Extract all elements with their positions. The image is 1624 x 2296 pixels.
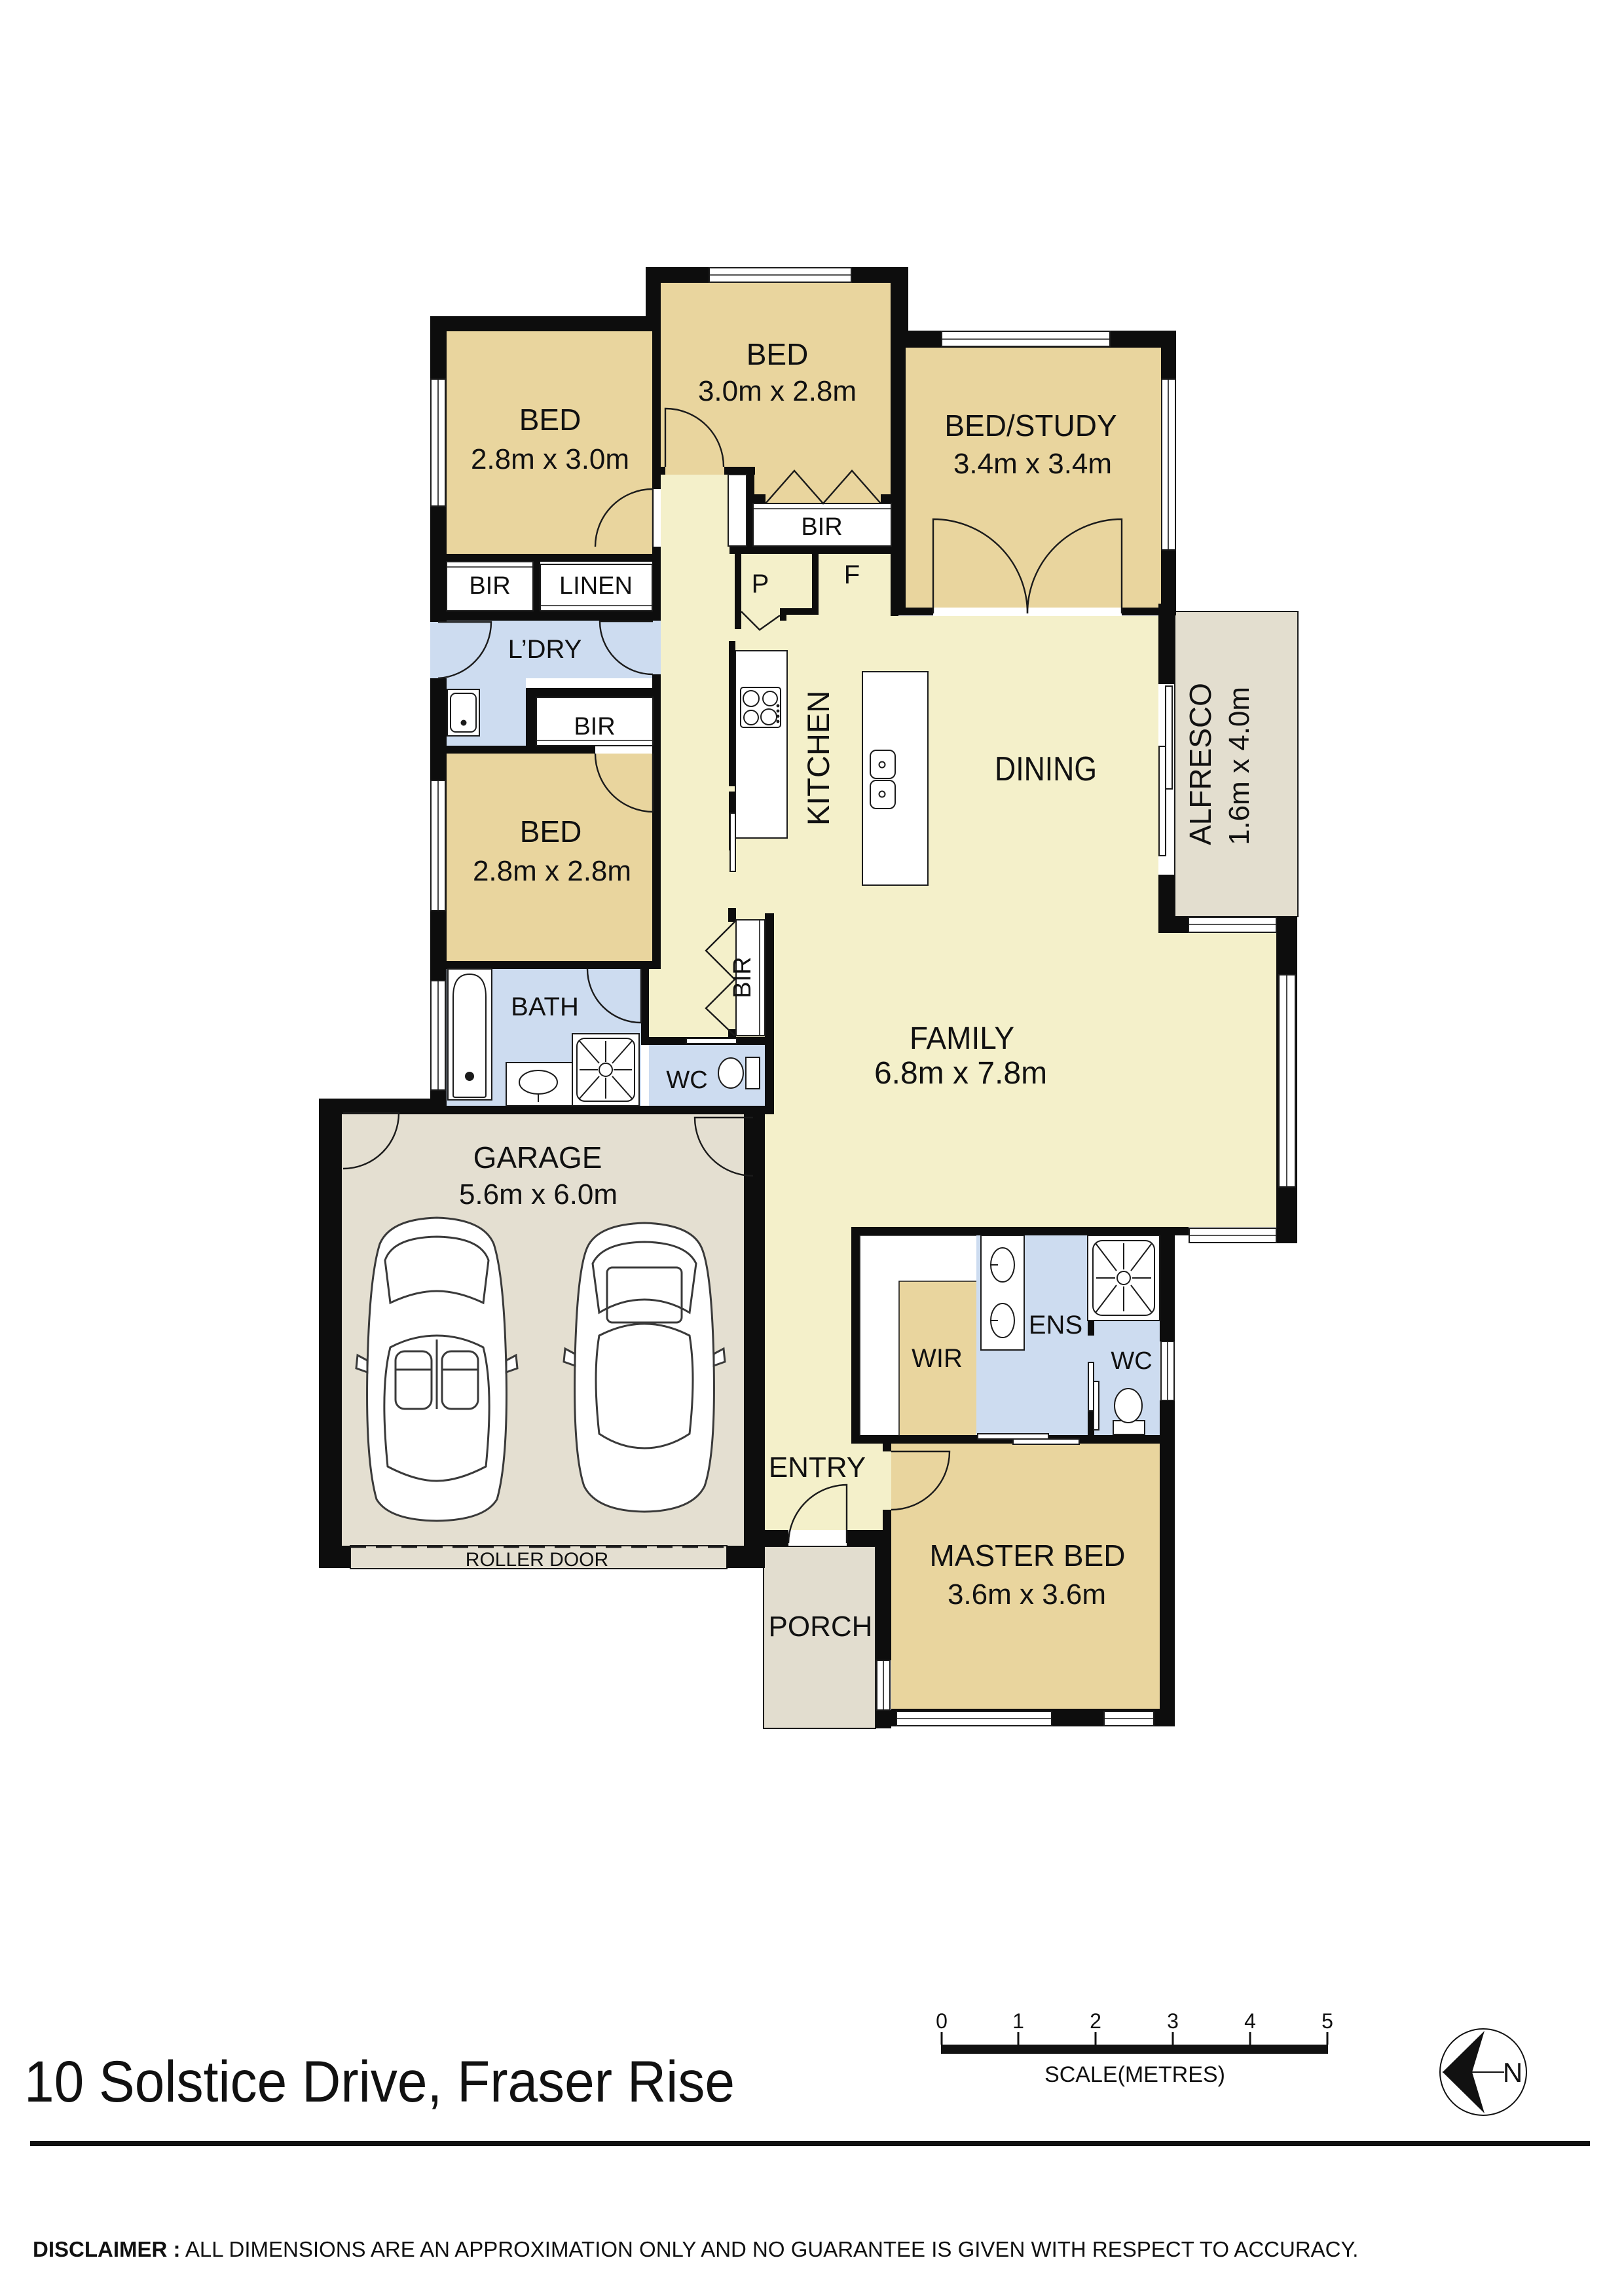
svg-text:KITCHEN: KITCHEN [801,691,836,826]
svg-text:GARAGE: GARAGE [473,1140,602,1175]
svg-text:DINING: DINING [995,750,1097,788]
svg-text:2: 2 [1090,2009,1101,2033]
svg-text:2.8m x 2.8m: 2.8m x 2.8m [473,855,631,887]
svg-text:WC: WC [1111,1347,1152,1375]
svg-text:F: F [844,560,860,589]
svg-text:LINEN: LINEN [559,572,633,600]
svg-text:ENS: ENS [1029,1311,1082,1339]
svg-text:1: 1 [1012,2009,1024,2033]
svg-text:WIR: WIR [912,1344,963,1373]
svg-text:0: 0 [936,2009,948,2033]
svg-text:ENTRY: ENTRY [769,1451,866,1484]
svg-text:6.8m x 7.8m: 6.8m x 7.8m [874,1056,1047,1091]
svg-text:ALFRESCO: ALFRESCO [1183,683,1217,845]
svg-text:BIR: BIR [729,957,756,998]
svg-text:BED: BED [519,403,581,437]
svg-text:BIR: BIR [801,513,842,541]
svg-text:BATH: BATH [511,993,579,1021]
svg-text:FAMILY: FAMILY [910,1021,1014,1056]
svg-text:ROLLER DOOR: ROLLER DOOR [466,1549,608,1571]
svg-text:SCALE(METRES): SCALE(METRES) [1044,2062,1225,2087]
svg-text:N: N [1503,2057,1522,2088]
svg-text:MASTER BED: MASTER BED [929,1539,1125,1573]
svg-text:BED: BED [747,337,809,371]
svg-text:BED/STUDY: BED/STUDY [944,409,1116,443]
svg-text:WC: WC [666,1066,707,1094]
svg-text:BED: BED [520,814,582,848]
svg-text:L’DRY: L’DRY [508,635,582,664]
svg-text:5: 5 [1321,2009,1333,2033]
svg-text:4: 4 [1244,2009,1256,2033]
svg-text:1.6m x 4.0m: 1.6m x 4.0m [1223,687,1255,845]
svg-text:BIR: BIR [574,713,615,740]
svg-text:P: P [752,570,769,598]
svg-text:10 Solstice Drive, Fraser Rise: 10 Solstice Drive, Fraser Rise [24,2049,735,2114]
svg-text:3: 3 [1167,2009,1179,2033]
svg-text:3.4m x 3.4m: 3.4m x 3.4m [953,448,1112,480]
svg-text:BIR: BIR [469,572,510,600]
svg-text:5.6m x 6.0m: 5.6m x 6.0m [459,1178,618,1211]
svg-text:3.0m x 2.8m: 3.0m x 2.8m [698,375,857,407]
svg-text:DISCLAIMER : ALL DIMENSIONS AR: DISCLAIMER : ALL DIMENSIONS ARE AN APPRO… [33,2237,1358,2261]
svg-text:PORCH: PORCH [769,1611,873,1643]
svg-text:2.8m x 3.0m: 2.8m x 3.0m [471,443,629,475]
svg-text:3.6m x 3.6m: 3.6m x 3.6m [948,1578,1106,1611]
